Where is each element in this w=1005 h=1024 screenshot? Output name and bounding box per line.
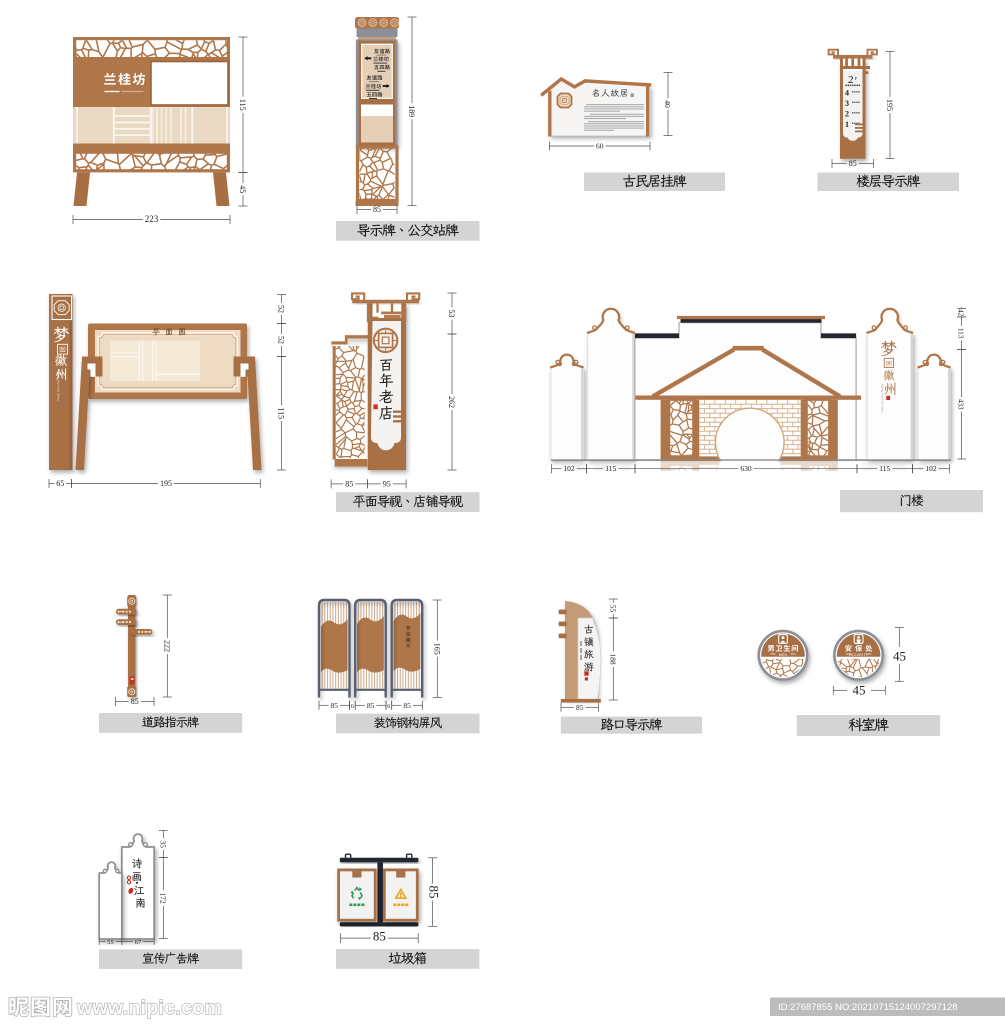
svg-text:630: 630 [740, 464, 752, 473]
svg-text:85: 85 [403, 701, 411, 710]
svg-text:www.nipic.com: www.nipic.com [76, 997, 222, 1019]
svg-text:SECURITY: SECURITY [849, 653, 869, 657]
svg-text:85: 85 [373, 929, 386, 944]
svg-text:6: 6 [387, 704, 390, 710]
svg-text:195: 195 [885, 99, 894, 111]
svg-text:67: 67 [135, 939, 142, 946]
svg-text:95: 95 [383, 479, 391, 488]
svg-text:433: 433 [957, 399, 965, 410]
svg-text:115: 115 [879, 464, 890, 473]
svg-text:165: 165 [432, 643, 441, 655]
svg-text:52: 52 [277, 336, 286, 344]
svg-text:55: 55 [608, 605, 617, 613]
svg-text:222: 222 [162, 640, 171, 652]
svg-text:85: 85 [345, 479, 353, 488]
svg-text:2: 2 [845, 109, 849, 118]
svg-text:55: 55 [107, 939, 114, 946]
svg-text:85: 85 [373, 205, 381, 214]
svg-text:MEN: MEN [779, 653, 788, 657]
svg-text:40: 40 [663, 100, 672, 108]
svg-text:172: 172 [158, 892, 167, 904]
svg-text:65: 65 [56, 479, 64, 488]
svg-text:ID:27687855 NO:202107151240072: ID:27687855 NO:20210715124007297128 [778, 1002, 958, 1013]
svg-text:195: 195 [160, 479, 172, 488]
svg-text:85: 85 [427, 886, 442, 899]
svg-text:102: 102 [563, 464, 575, 473]
svg-text:85: 85 [367, 701, 375, 710]
svg-text:45: 45 [853, 683, 866, 698]
svg-text:115: 115 [277, 407, 286, 419]
svg-text:52: 52 [277, 305, 286, 313]
svg-text:85: 85 [849, 159, 857, 168]
svg-text:42: 42 [957, 309, 965, 317]
svg-text:60: 60 [596, 142, 604, 151]
svg-text:85: 85 [576, 703, 584, 712]
svg-text:85: 85 [331, 701, 339, 710]
svg-text:188: 188 [608, 653, 617, 665]
svg-text:1: 1 [845, 120, 849, 129]
svg-text:35: 35 [158, 840, 167, 848]
svg-text:6: 6 [351, 704, 354, 710]
svg-text:Meng Hui Hui Zhou: Meng Hui Hui Zhou [880, 384, 884, 413]
svg-text:113: 113 [957, 328, 965, 339]
svg-text:262: 262 [447, 396, 456, 408]
svg-text:53: 53 [447, 310, 456, 318]
svg-text:3: 3 [845, 99, 849, 108]
svg-text:115: 115 [605, 464, 616, 473]
svg-text:45: 45 [238, 185, 247, 193]
svg-text:189: 189 [407, 105, 416, 117]
svg-text:102: 102 [925, 464, 937, 473]
svg-text:Meng Hui Hui Zhou: Meng Hui Hui Zhou [57, 370, 61, 402]
svg-text:115: 115 [238, 99, 247, 111]
svg-text:2: 2 [848, 74, 854, 86]
svg-text:4: 4 [845, 88, 849, 97]
svg-text:85: 85 [131, 697, 139, 706]
svg-text:223: 223 [145, 214, 159, 224]
svg-text:45: 45 [893, 649, 906, 664]
